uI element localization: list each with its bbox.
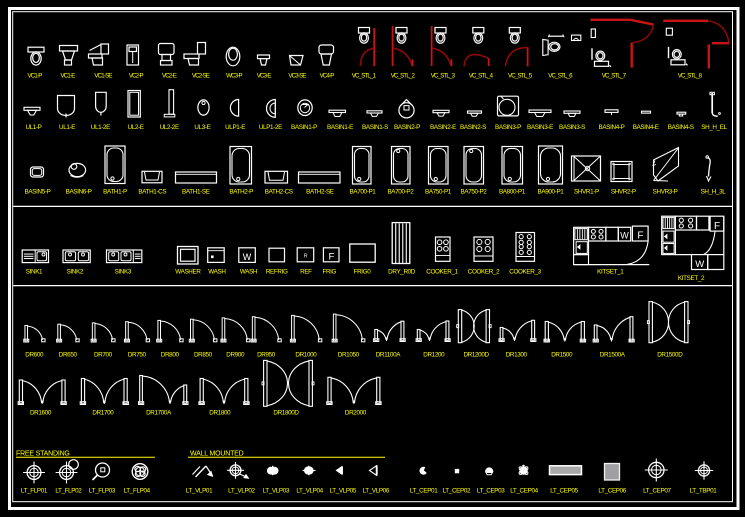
svg-text:BATH1-CS: BATH1-CS: [138, 189, 166, 196]
svg-text:DR800: DR800: [161, 352, 180, 359]
svg-text:VC2-SE: VC2-SE: [192, 73, 210, 80]
svg-text:BASIN2-P: BASIN2-P: [394, 124, 420, 131]
svg-text:KITSET_1: KITSET_1: [597, 269, 624, 276]
svg-text:VC1-P: VC1-P: [28, 73, 43, 80]
svg-text:DR1800D: DR1800D: [273, 410, 299, 417]
svg-text:SHVR3-P: SHVR3-P: [653, 189, 678, 196]
svg-text:BASIN1-P: BASIN1-P: [291, 124, 317, 131]
svg-text:BATH1-P: BATH1-P: [103, 189, 127, 196]
svg-text:BA900-P1: BA900-P1: [538, 189, 565, 196]
svg-text:BA800-P1: BA800-P1: [499, 189, 526, 196]
svg-text:DRY_R0D: DRY_R0D: [388, 269, 416, 276]
svg-text:UL3-E: UL3-E: [194, 124, 210, 131]
svg-text:BASIN4-S: BASIN4-S: [668, 124, 694, 131]
svg-text:BASIN1-S: BASIN1-S: [362, 124, 388, 131]
svg-text:UL1-2E: UL1-2E: [91, 124, 110, 131]
svg-text:BATH1-SE: BATH1-SE: [182, 189, 210, 196]
svg-text:WALL MOUNTED: WALL MOUNTED: [190, 451, 244, 458]
svg-text:F: F: [637, 231, 643, 242]
svg-text:BASIN1-E: BASIN1-E: [327, 124, 353, 131]
svg-text:DR1500A: DR1500A: [600, 352, 626, 359]
svg-text:LT_FLP03: LT_FLP03: [89, 488, 116, 495]
svg-text:DR1050: DR1050: [338, 352, 360, 359]
svg-text:LT_FLP02: LT_FLP02: [55, 488, 82, 495]
svg-text:BASIN5-P: BASIN5-P: [25, 189, 51, 196]
svg-text:VC_STL_3: VC_STL_3: [431, 73, 456, 80]
svg-text:BATH2-P: BATH2-P: [229, 189, 253, 196]
svg-text:F: F: [714, 221, 720, 232]
svg-text:DR850: DR850: [194, 352, 213, 359]
svg-text:ULP1-2E: ULP1-2E: [259, 124, 282, 131]
svg-text:VC3-SE: VC3-SE: [288, 73, 306, 80]
svg-text:DR1500D: DR1500D: [657, 352, 683, 359]
svg-text:DR1100A: DR1100A: [376, 352, 402, 359]
svg-text:LT_CEP06: LT_CEP06: [598, 488, 626, 495]
svg-text:UL1-P: UL1-P: [25, 124, 41, 131]
svg-text:ULP1-E: ULP1-E: [225, 124, 245, 131]
svg-text:DR1700: DR1700: [92, 410, 114, 417]
svg-text:VC1-E: VC1-E: [61, 73, 76, 80]
svg-text:DR1700A: DR1700A: [146, 410, 172, 417]
svg-text:BASIN4-E: BASIN4-E: [633, 124, 659, 131]
svg-text:DR1500: DR1500: [551, 352, 573, 359]
svg-text:LT_VLP02: LT_VLP02: [228, 488, 255, 495]
svg-text:REF: REF: [300, 269, 312, 276]
svg-text:LT_VLP01: LT_VLP01: [186, 488, 213, 495]
svg-text:VC_STL_1: VC_STL_1: [352, 73, 377, 80]
svg-text:UL2-E: UL2-E: [128, 124, 144, 131]
svg-text:VC2-E: VC2-E: [162, 73, 177, 80]
svg-text:BATH2-SE: BATH2-SE: [306, 189, 334, 196]
svg-text:FRIG: FRIG: [322, 269, 336, 276]
svg-text:BASIN3-E: BASIN3-E: [527, 124, 553, 131]
svg-text:SINK2: SINK2: [67, 269, 84, 276]
svg-text:SINK1: SINK1: [26, 269, 43, 276]
svg-text:VC2-P: VC2-P: [129, 73, 144, 80]
svg-text:BATH2-CS: BATH2-CS: [265, 189, 293, 196]
svg-text:VC3-E: VC3-E: [257, 73, 272, 80]
svg-text:DR1300: DR1300: [506, 352, 528, 359]
svg-text:DR2000: DR2000: [345, 410, 367, 417]
svg-text:UL1-E: UL1-E: [59, 124, 75, 131]
svg-text:VC1-SE: VC1-SE: [94, 73, 112, 80]
svg-text:LT_CEP07: LT_CEP07: [643, 488, 671, 495]
svg-text:LT_VLP06: LT_VLP06: [363, 488, 390, 495]
svg-text:WASH: WASH: [240, 269, 258, 276]
svg-text:VC_STL_2: VC_STL_2: [391, 73, 416, 80]
svg-text:BASIN2-S: BASIN2-S: [460, 124, 486, 131]
svg-text:SHVR1-P: SHVR1-P: [574, 189, 599, 196]
svg-text:BASIN4-P: BASIN4-P: [599, 124, 625, 131]
svg-text:KITSET_2: KITSET_2: [678, 275, 705, 282]
svg-text:VC_STL_7: VC_STL_7: [602, 73, 627, 80]
svg-text:LT_CEP02: LT_CEP02: [443, 488, 471, 495]
svg-text:BASIN3-S: BASIN3-S: [559, 124, 585, 131]
svg-text:WASH: WASH: [208, 269, 226, 276]
svg-text:SINK3: SINK3: [115, 269, 132, 276]
svg-text:LT_CEP04: LT_CEP04: [510, 488, 538, 495]
svg-text:W: W: [243, 252, 252, 262]
svg-text:DR1600: DR1600: [30, 410, 52, 417]
svg-text:LT_CEP03: LT_CEP03: [477, 488, 505, 495]
svg-text:REFRIG: REFRIG: [266, 269, 288, 276]
svg-text:BA750-P1: BA750-P1: [425, 189, 452, 196]
svg-text:W: W: [620, 231, 629, 241]
svg-text:COOKER_3: COOKER_3: [509, 269, 541, 276]
svg-text:VC4-P: VC4-P: [320, 73, 335, 80]
svg-text:LT_CEP01: LT_CEP01: [410, 488, 438, 495]
svg-text:WC3-P: WC3-P: [226, 73, 242, 80]
svg-text:LT_CEP05: LT_CEP05: [550, 488, 578, 495]
svg-text:VC_STL_8: VC_STL_8: [678, 73, 703, 80]
svg-text:BASIN6-P: BASIN6-P: [66, 189, 92, 196]
svg-text:BA750-P2: BA750-P2: [461, 189, 488, 196]
svg-text:SH_H_EL: SH_H_EL: [701, 124, 727, 131]
svg-text:UL2-2E: UL2-2E: [160, 124, 179, 131]
svg-text:FRIG0: FRIG0: [354, 269, 372, 276]
svg-text:LT_VLP03: LT_VLP03: [263, 488, 290, 495]
svg-text:BA700-P2: BA700-P2: [387, 189, 414, 196]
svg-text:R: R: [304, 254, 308, 260]
svg-text:LT_FLP01: LT_FLP01: [21, 488, 48, 495]
svg-text:SH_H_3L: SH_H_3L: [701, 189, 727, 196]
svg-text:DR900: DR900: [226, 352, 245, 359]
svg-text:DR600: DR600: [25, 352, 44, 359]
svg-text:DR1000: DR1000: [295, 352, 317, 359]
svg-text:BA700-P1: BA700-P1: [350, 189, 377, 196]
svg-text:DR750: DR750: [128, 352, 147, 359]
svg-text:LT_FLP04: LT_FLP04: [124, 488, 151, 495]
svg-text:DR650: DR650: [59, 352, 78, 359]
svg-text:LT_VLP04: LT_VLP04: [296, 488, 323, 495]
svg-text:COOKER_2: COOKER_2: [468, 269, 500, 276]
svg-text:DR700: DR700: [94, 352, 113, 359]
svg-text:BASIN2-E: BASIN2-E: [430, 124, 456, 131]
svg-text:FREE STANDING: FREE STANDING: [16, 451, 70, 458]
svg-text:COOKER_1: COOKER_1: [426, 269, 458, 276]
svg-text:DR1800: DR1800: [209, 410, 231, 417]
svg-text:DR1200D: DR1200D: [463, 352, 489, 359]
svg-text:VC_STL_6: VC_STL_6: [548, 73, 573, 80]
svg-text:DR1200: DR1200: [423, 352, 445, 359]
svg-text:LT_VLP05: LT_VLP05: [330, 488, 357, 495]
svg-text:F: F: [328, 252, 334, 263]
svg-text:W: W: [695, 259, 704, 270]
svg-text:WASHER: WASHER: [175, 269, 201, 276]
svg-text:DR950: DR950: [257, 352, 276, 359]
svg-text:BASIN3-P: BASIN3-P: [495, 124, 521, 131]
svg-text:SHVR2-P: SHVR2-P: [611, 189, 636, 196]
svg-text:VC_STL_5: VC_STL_5: [508, 73, 533, 80]
svg-text:VC_STL_4: VC_STL_4: [469, 73, 494, 80]
svg-text:LT_TBP01: LT_TBP01: [690, 488, 718, 495]
